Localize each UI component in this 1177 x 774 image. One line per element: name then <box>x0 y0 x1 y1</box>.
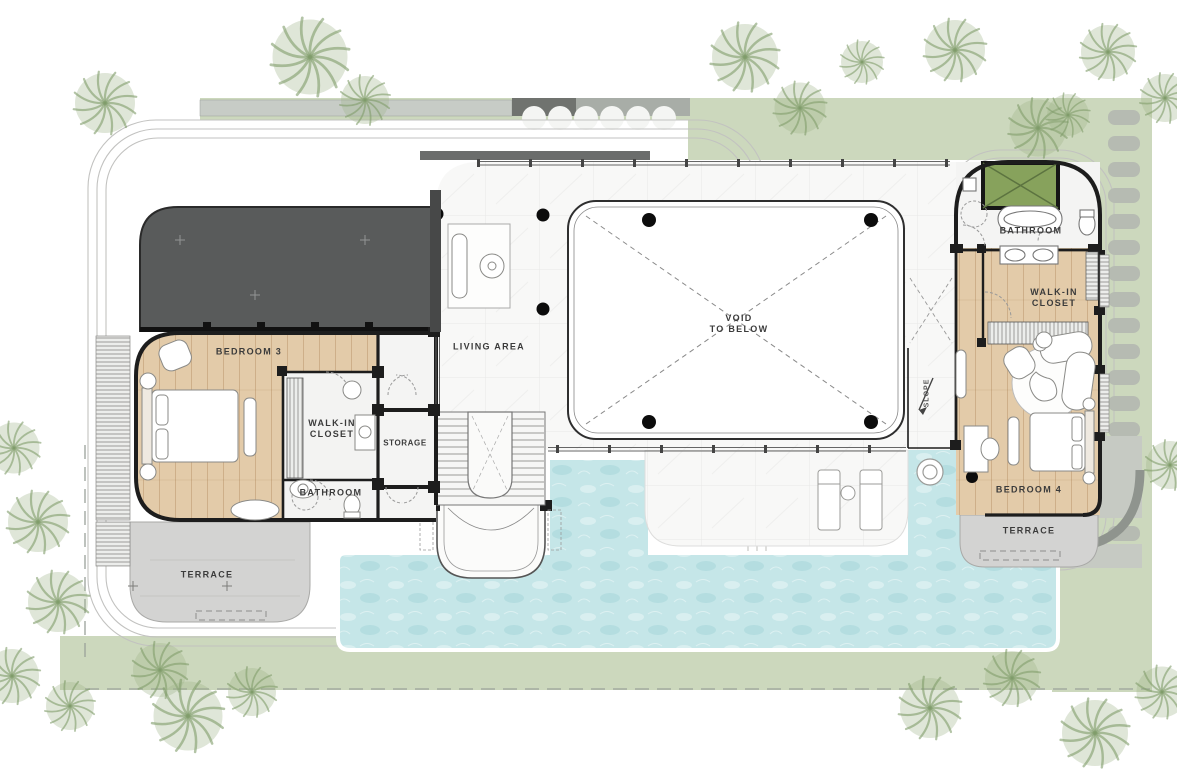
nightstand <box>1083 398 1095 410</box>
living-furniture <box>448 224 510 308</box>
side-table <box>841 486 855 500</box>
bed-headboard <box>1085 411 1094 473</box>
walkin-stool <box>343 381 361 399</box>
room-label-terrace-left: TERRACE <box>181 570 234 581</box>
curved-bench <box>452 234 467 298</box>
room-label-walk-in-closet-right: WALK-IN CLOSET <box>1030 287 1078 309</box>
room-label-bedroom-3: BEDROOM 3 <box>216 347 282 358</box>
boundary-wall-band <box>200 98 690 130</box>
nightstand <box>140 373 156 389</box>
room-label-void: VOID TO BELOW <box>710 313 769 335</box>
pool-float <box>917 459 943 485</box>
terrace-right-area <box>960 515 1098 567</box>
room-label-bathroom-left: BATHROOM <box>300 488 363 499</box>
bed-headboard <box>142 388 152 464</box>
room-label-living-area: LIVING AREA <box>453 342 525 353</box>
ramp-label-slope: SLOPE <box>922 379 933 408</box>
bed-bench <box>244 398 256 456</box>
pool-deck <box>645 450 943 546</box>
bed-bench <box>1008 417 1019 465</box>
staircase <box>437 412 545 505</box>
walkin-stool <box>1036 332 1052 348</box>
floor-plan-page: BEDROOM 3 WALK-IN CLOSET BATHROOM STORAG… <box>0 0 1177 774</box>
room-label-walk-in-closet-left: WALK-IN CLOSET <box>308 418 356 440</box>
skylight <box>983 163 1058 208</box>
flat-roof-deck <box>140 207 436 332</box>
nightstand <box>1083 472 1095 484</box>
desk-chair <box>981 438 999 460</box>
room-label-bedroom-4: BEDROOM 4 <box>996 485 1062 496</box>
console <box>231 500 279 520</box>
room-label-bathroom-right: BATHROOM <box>1000 226 1063 237</box>
room-label-terrace-right: TERRACE <box>1003 526 1056 537</box>
room-label-storage: STORAGE <box>383 438 427 449</box>
floor-plan-drawing <box>0 0 1177 774</box>
nightstand <box>140 464 156 480</box>
hall-bench <box>956 350 966 398</box>
